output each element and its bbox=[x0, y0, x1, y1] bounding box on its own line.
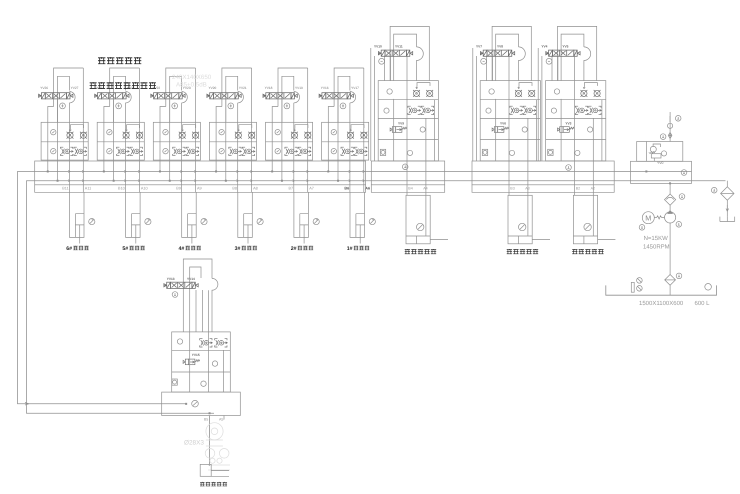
svg-text:YV18: YV18 bbox=[265, 86, 273, 90]
svg-text:B2: B2 bbox=[576, 186, 580, 190]
svg-text:YV9: YV9 bbox=[398, 122, 404, 126]
svg-text:YV13: YV13 bbox=[167, 277, 175, 281]
svg-text:1#: 1# bbox=[347, 246, 353, 252]
svg-text:YV11: YV11 bbox=[395, 45, 403, 49]
svg-text:YV10: YV10 bbox=[374, 45, 382, 49]
svg-text:A2: A2 bbox=[591, 186, 595, 190]
svg-text:N=15KW: N=15KW bbox=[644, 235, 669, 242]
svg-text:1450RPM: 1450RPM bbox=[643, 244, 670, 251]
svg-text:A6: A6 bbox=[365, 186, 370, 190]
svg-text:YV20: YV20 bbox=[209, 86, 217, 90]
svg-text:YV27: YV27 bbox=[71, 86, 79, 90]
svg-text:A10: A10 bbox=[141, 186, 148, 190]
svg-text:A3: A3 bbox=[525, 186, 529, 190]
svg-text:YV6: YV6 bbox=[500, 122, 506, 126]
svg-text:A11: A11 bbox=[85, 186, 91, 190]
svg-text:YV0: YV0 bbox=[657, 161, 664, 165]
svg-text:240X140X650: 240X140X650 bbox=[172, 74, 212, 81]
svg-text:5#: 5# bbox=[122, 246, 128, 252]
svg-text:600 L: 600 L bbox=[695, 300, 711, 307]
svg-text:YV17: YV17 bbox=[351, 86, 359, 90]
svg-text:YV16: YV16 bbox=[321, 86, 329, 90]
svg-text:YV5: YV5 bbox=[562, 45, 568, 49]
svg-text:YV14: YV14 bbox=[187, 277, 195, 281]
svg-text:YV22: YV22 bbox=[152, 86, 160, 90]
svg-text:B4: B4 bbox=[408, 186, 412, 190]
svg-text:A5: A5 bbox=[219, 418, 223, 422]
svg-text:B7: B7 bbox=[288, 186, 293, 190]
svg-text:B11: B11 bbox=[62, 186, 68, 190]
svg-text:YV19: YV19 bbox=[295, 86, 303, 90]
svg-text:6#: 6# bbox=[66, 246, 72, 252]
svg-text:B5: B5 bbox=[204, 418, 208, 422]
svg-text:B9: B9 bbox=[176, 186, 181, 190]
svg-text:YV8: YV8 bbox=[497, 45, 503, 49]
svg-text:1500X1100X600: 1500X1100X600 bbox=[639, 300, 684, 307]
svg-text:3#: 3# bbox=[235, 246, 241, 252]
svg-text:YV21: YV21 bbox=[239, 86, 247, 90]
svg-text:B3: B3 bbox=[510, 186, 514, 190]
svg-text:B10: B10 bbox=[118, 186, 125, 190]
svg-text:A8: A8 bbox=[253, 186, 258, 190]
svg-text:2#: 2# bbox=[291, 246, 297, 252]
svg-text:YV3: YV3 bbox=[565, 122, 571, 126]
svg-text:4#: 4# bbox=[179, 246, 185, 252]
svg-text:YV7: YV7 bbox=[476, 45, 482, 49]
svg-text:A4: A4 bbox=[423, 186, 427, 190]
svg-text:M: M bbox=[645, 214, 651, 223]
svg-text:B8: B8 bbox=[232, 186, 237, 190]
svg-text:YV4: YV4 bbox=[541, 45, 547, 49]
svg-text:Ø28X3: Ø28X3 bbox=[184, 440, 204, 447]
svg-text:YV26: YV26 bbox=[40, 86, 48, 90]
svg-text:B6: B6 bbox=[344, 186, 349, 190]
svg-text:YV24: YV24 bbox=[96, 86, 104, 90]
svg-text:A7: A7 bbox=[309, 186, 314, 190]
svg-text:A9: A9 bbox=[197, 186, 202, 190]
svg-text:A85+0.5dB: A85+0.5dB bbox=[176, 82, 207, 89]
svg-text:YV15: YV15 bbox=[192, 353, 200, 357]
